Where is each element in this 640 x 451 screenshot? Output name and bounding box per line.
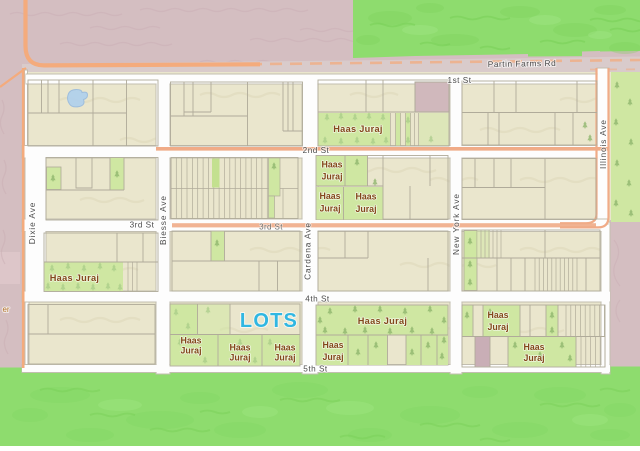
svg-text:Haas Juraj: Haas Juraj (358, 316, 407, 326)
svg-text:Haas Juraj: Haas Juraj (50, 273, 99, 283)
svg-text:Haas: Haas (274, 343, 295, 353)
svg-text:LOTS: LOTS (240, 310, 298, 332)
svg-text:Haas: Haas (180, 336, 201, 346)
svg-text:Juraj: Juraj (319, 204, 340, 214)
svg-text:3rd St: 3rd St (130, 221, 155, 230)
svg-text:2nd St: 2nd St (303, 146, 330, 155)
svg-text:New York Ave: New York Ave (451, 193, 461, 255)
svg-text:3rd St: 3rd St (259, 223, 283, 232)
svg-text:Cardena Ave: Cardena Ave (303, 222, 313, 280)
svg-text:er: er (2, 305, 9, 314)
svg-text:Juraj: Juraj (274, 353, 295, 363)
svg-text:Haas: Haas (322, 340, 343, 350)
svg-text:Haas: Haas (523, 342, 544, 352)
svg-text:1st St: 1st St (448, 76, 472, 85)
svg-text:Dixie Ave: Dixie Ave (27, 202, 37, 245)
svg-text:Partin Farms Rd: Partin Farms Rd (488, 58, 557, 69)
svg-text:Haas: Haas (319, 191, 340, 201)
svg-text:Haas: Haas (321, 160, 342, 170)
svg-text:Haas: Haas (487, 310, 508, 320)
svg-text:Juraj: Juraj (523, 353, 544, 363)
svg-text:Haas Juraj: Haas Juraj (333, 124, 382, 134)
svg-text:Haas: Haas (229, 343, 250, 353)
svg-text:Juraj: Juraj (229, 353, 250, 363)
svg-text:Biesse Ave: Biesse Ave (158, 195, 168, 245)
svg-text:5th St: 5th St (303, 365, 328, 374)
svg-text:4th St: 4th St (305, 295, 330, 304)
svg-text:Juraj: Juraj (321, 172, 342, 182)
svg-text:Juraj: Juraj (355, 204, 376, 214)
svg-text:Illinois Ave: Illinois Ave (598, 119, 608, 169)
svg-text:Juraj: Juraj (322, 352, 343, 362)
svg-text:Juraj: Juraj (180, 346, 201, 356)
svg-text:Haas: Haas (355, 192, 376, 202)
svg-text:Juraj: Juraj (487, 322, 508, 332)
